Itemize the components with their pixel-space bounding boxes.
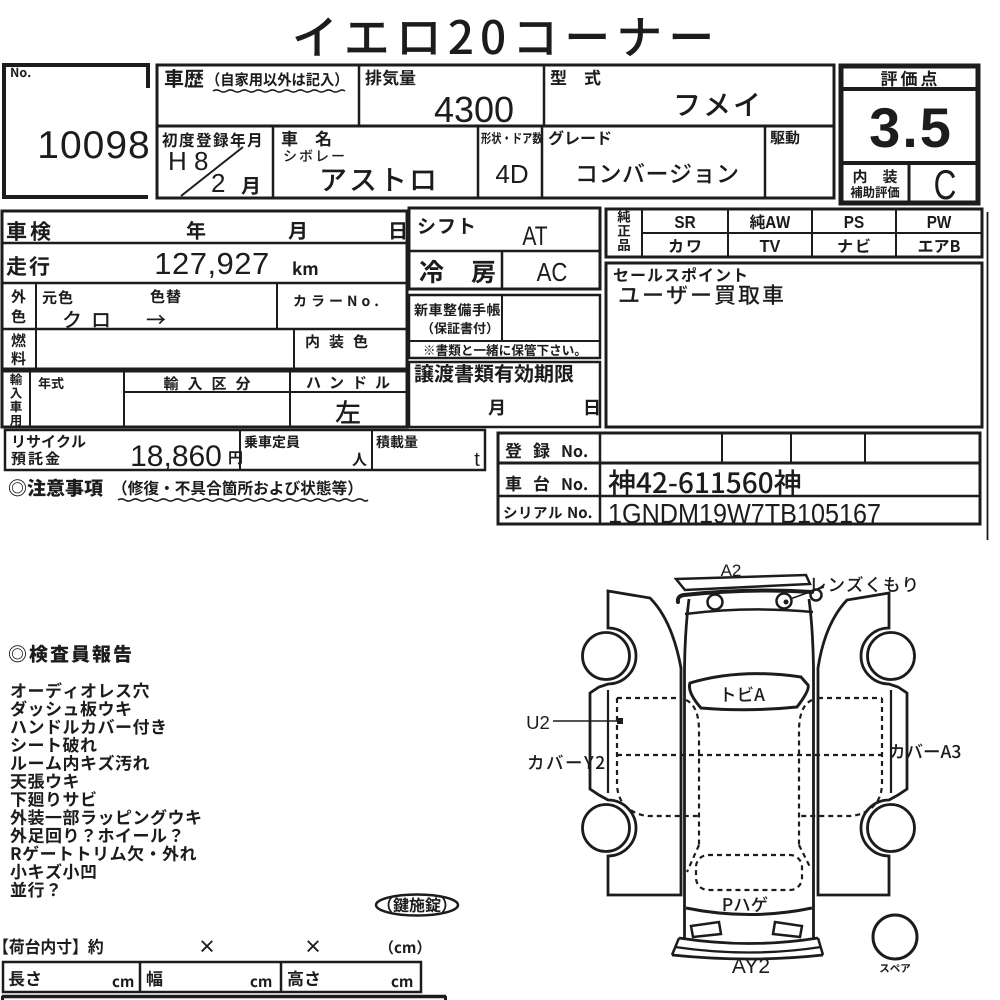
svg-text:C: C	[934, 161, 957, 209]
svg-text:AT: AT	[522, 222, 548, 252]
svg-text:TV: TV	[760, 236, 781, 256]
svg-text:H 8: H 8	[168, 146, 208, 176]
svg-text:SR: SR	[674, 212, 695, 232]
svg-text:1GNDM19W7TB105167: 1GNDM19W7TB105167	[608, 498, 881, 530]
svg-text:127,927: 127,927	[154, 246, 270, 281]
svg-text:PW: PW	[927, 212, 952, 232]
svg-text:PS: PS	[844, 212, 864, 232]
svg-text:AC: AC	[537, 258, 568, 287]
svg-text:U2: U2	[526, 712, 550, 733]
svg-text:18,860: 18,860	[130, 440, 222, 473]
svg-text:A2: A2	[721, 561, 742, 580]
svg-text:4D: 4D	[495, 159, 528, 189]
svg-text:t: t	[474, 449, 480, 471]
svg-text:AY2: AY2	[732, 955, 770, 978]
svg-text:2: 2	[211, 168, 225, 198]
svg-text:3.5: 3.5	[869, 96, 953, 159]
svg-text:10098: 10098	[37, 124, 150, 167]
svg-text:4300: 4300	[434, 89, 514, 130]
